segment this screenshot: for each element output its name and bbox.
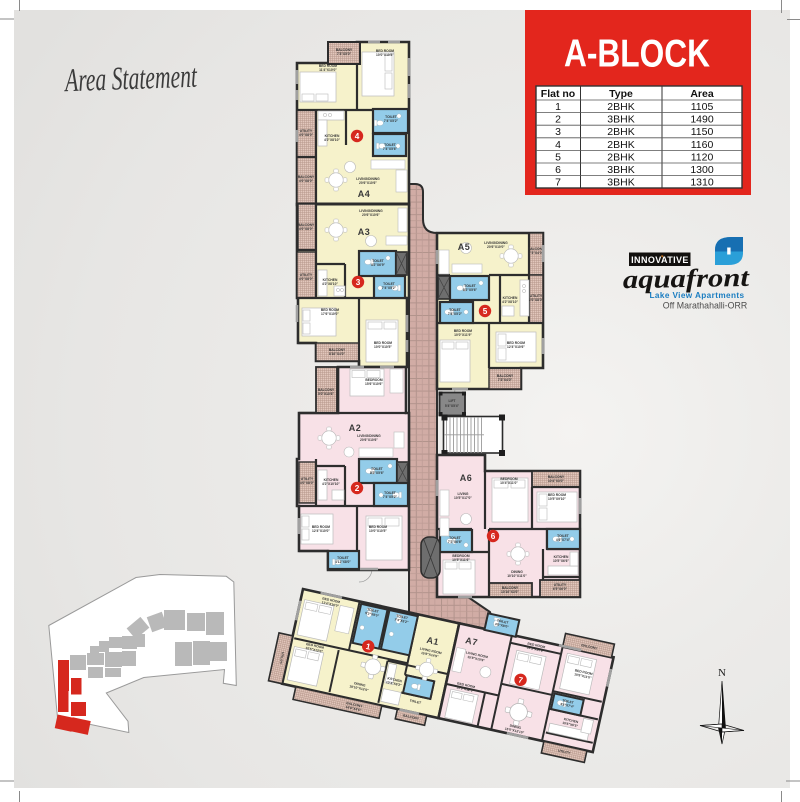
svg-text:6: 6 — [555, 164, 561, 176]
svg-text:2BHK: 2BHK — [607, 151, 634, 163]
svg-text:1300: 1300 — [690, 164, 714, 176]
svg-text:12'4"X10'6": 12'4"X10'6" — [507, 345, 525, 349]
svg-text:20'6"X10'6": 20'6"X10'6" — [362, 213, 380, 217]
svg-text:A2: A2 — [349, 423, 362, 433]
svg-text:Area: Area — [690, 88, 714, 100]
svg-text:4'6"X7'4": 4'6"X7'4" — [556, 538, 571, 542]
svg-text:4'0"X8'0": 4'0"X8'0" — [299, 227, 314, 231]
svg-text:1310: 1310 — [690, 177, 714, 189]
svg-text:1: 1 — [555, 101, 561, 113]
svg-text:7'3"X4'0": 7'3"X4'0" — [498, 378, 513, 382]
svg-text:8'10"X4'0": 8'10"X4'0" — [329, 352, 345, 356]
svg-text:5: 5 — [483, 307, 488, 316]
svg-text:17'6"X10'0": 17'6"X10'0" — [321, 312, 339, 316]
svg-text:6'5"X6'0": 6'5"X6'0" — [553, 587, 568, 591]
svg-text:1490: 1490 — [690, 114, 714, 126]
svg-text:Lake View Apartments: Lake View Apartments — [650, 291, 745, 300]
svg-text:N: N — [718, 667, 726, 679]
svg-text:3BHK: 3BHK — [607, 164, 634, 176]
svg-text:4'0"X8'0": 4'0"X8'0" — [299, 179, 314, 183]
svg-text:4'0"X8'0": 4'0"X8'0" — [299, 133, 314, 137]
svg-text:A5: A5 — [458, 242, 471, 252]
svg-text:20'6"X10'6": 20'6"X10'6" — [359, 181, 377, 185]
svg-text:10'5"X6'6": 10'5"X6'6" — [553, 559, 569, 563]
svg-text:Flat no: Flat no — [541, 88, 575, 100]
svg-text:10'4"X11'0": 10'4"X11'0" — [500, 481, 518, 485]
svg-text:5: 5 — [555, 151, 561, 163]
svg-text:2'0"X8'0": 2'0"X8'0" — [529, 298, 544, 302]
svg-text:3: 3 — [356, 278, 361, 287]
svg-text:7: 7 — [555, 177, 561, 189]
svg-text:7'4"X5'2": 7'4"X5'2" — [382, 286, 397, 290]
svg-text:10'10"X3'0": 10'10"X3'0" — [501, 590, 519, 594]
svg-text:A3: A3 — [358, 227, 371, 237]
svg-text:8'2"X5'6": 8'2"X5'6" — [463, 288, 478, 292]
svg-text:7'4"X5'6": 7'4"X5'6" — [383, 147, 398, 151]
svg-text:4'2"X10'10": 4'2"X10'10" — [322, 482, 340, 486]
svg-text:7'4"X5'2": 7'4"X5'2" — [383, 495, 398, 499]
svg-text:1120: 1120 — [691, 151, 714, 163]
svg-text:4: 4 — [555, 139, 561, 151]
svg-text:4'0"X8'0": 4'0"X8'0" — [300, 481, 315, 485]
svg-text:8'2"X5'6": 8'2"X5'6" — [370, 471, 385, 475]
svg-text:2: 2 — [355, 484, 360, 493]
svg-text:10'4"X3'0": 10'4"X3'0" — [548, 479, 564, 483]
svg-text:LIFT: LIFT — [449, 399, 456, 403]
svg-text:2BHK: 2BHK — [607, 101, 634, 113]
svg-text:7'2"X6'6": 7'2"X6'6" — [448, 540, 463, 544]
svg-text:2: 2 — [555, 114, 561, 126]
svg-text:4'2"X6'9": 4'2"X6'9" — [371, 263, 386, 267]
svg-text:10'5"X9'10": 10'5"X9'10" — [548, 497, 566, 501]
svg-text:4'2"X8'10": 4'2"X8'10" — [322, 282, 338, 286]
svg-text:10'0"X10'5": 10'0"X10'5" — [374, 345, 392, 349]
svg-text:20'6"X10'6": 20'6"X10'6" — [360, 438, 378, 442]
svg-text:1160: 1160 — [691, 139, 714, 151]
svg-text:3BHK: 3BHK — [607, 177, 634, 189]
svg-text:2BHK: 2BHK — [607, 139, 634, 151]
svg-text:10'0"X10'5": 10'0"X10'5" — [376, 53, 394, 57]
svg-text:4'0"X8'0": 4'0"X8'0" — [299, 277, 314, 281]
svg-text:2BHK: 2BHK — [607, 126, 634, 138]
svg-text:10'5"X11'6": 10'5"X11'6" — [452, 558, 470, 562]
svg-text:Off Marathahalli-ORR: Off Marathahalli-ORR — [663, 301, 747, 311]
svg-text:4'2"X8'10": 4'2"X8'10" — [324, 138, 340, 142]
svg-text:7'4"X5'2": 7'4"X5'2" — [384, 119, 399, 123]
svg-text:1150: 1150 — [691, 126, 714, 138]
svg-text:Area Statement: Area Statement — [63, 59, 198, 100]
svg-text:7'3"X4'0": 7'3"X4'0" — [529, 251, 544, 255]
svg-text:20'6"X10'0": 20'6"X10'0" — [487, 245, 505, 249]
svg-text:10'10"X11'0": 10'10"X11'0" — [507, 574, 527, 578]
svg-text:1105: 1105 — [691, 101, 714, 113]
svg-text:7'3"X5'0": 7'3"X5'0" — [337, 52, 352, 56]
svg-text:aquafront: aquafront — [623, 263, 750, 294]
svg-text:A6: A6 — [460, 473, 473, 483]
svg-text:4: 4 — [355, 132, 360, 141]
svg-text:3BHK: 3BHK — [607, 114, 634, 126]
svg-text:Type: Type — [609, 88, 633, 100]
svg-text:10'5"X17'0": 10'5"X17'0" — [454, 496, 472, 500]
svg-text:5'4"X5'4": 5'4"X5'4" — [445, 404, 460, 408]
svg-text:11'4"X10'0": 11'4"X10'0" — [319, 68, 337, 72]
svg-text:12'4"X10'0": 12'4"X10'0" — [312, 529, 330, 533]
svg-text:4'11"X8'0": 4'11"X8'0" — [335, 560, 351, 564]
svg-text:10'0"X10'5": 10'0"X10'5" — [369, 529, 387, 533]
svg-text:7'4"X5'2": 7'4"X5'2" — [448, 312, 463, 316]
svg-text:6: 6 — [491, 532, 496, 541]
svg-text:10'0"X11'9": 10'0"X11'9" — [454, 333, 472, 337]
svg-text:A4: A4 — [358, 189, 371, 199]
svg-text:15'6"X10'6": 15'6"X10'6" — [365, 382, 383, 386]
svg-text:5'0"X10'6": 5'0"X10'6" — [318, 392, 334, 396]
svg-text:3: 3 — [555, 126, 561, 138]
svg-text:A-BLOCK: A-BLOCK — [564, 33, 710, 76]
svg-text:4'2"X8'10": 4'2"X8'10" — [502, 300, 518, 304]
